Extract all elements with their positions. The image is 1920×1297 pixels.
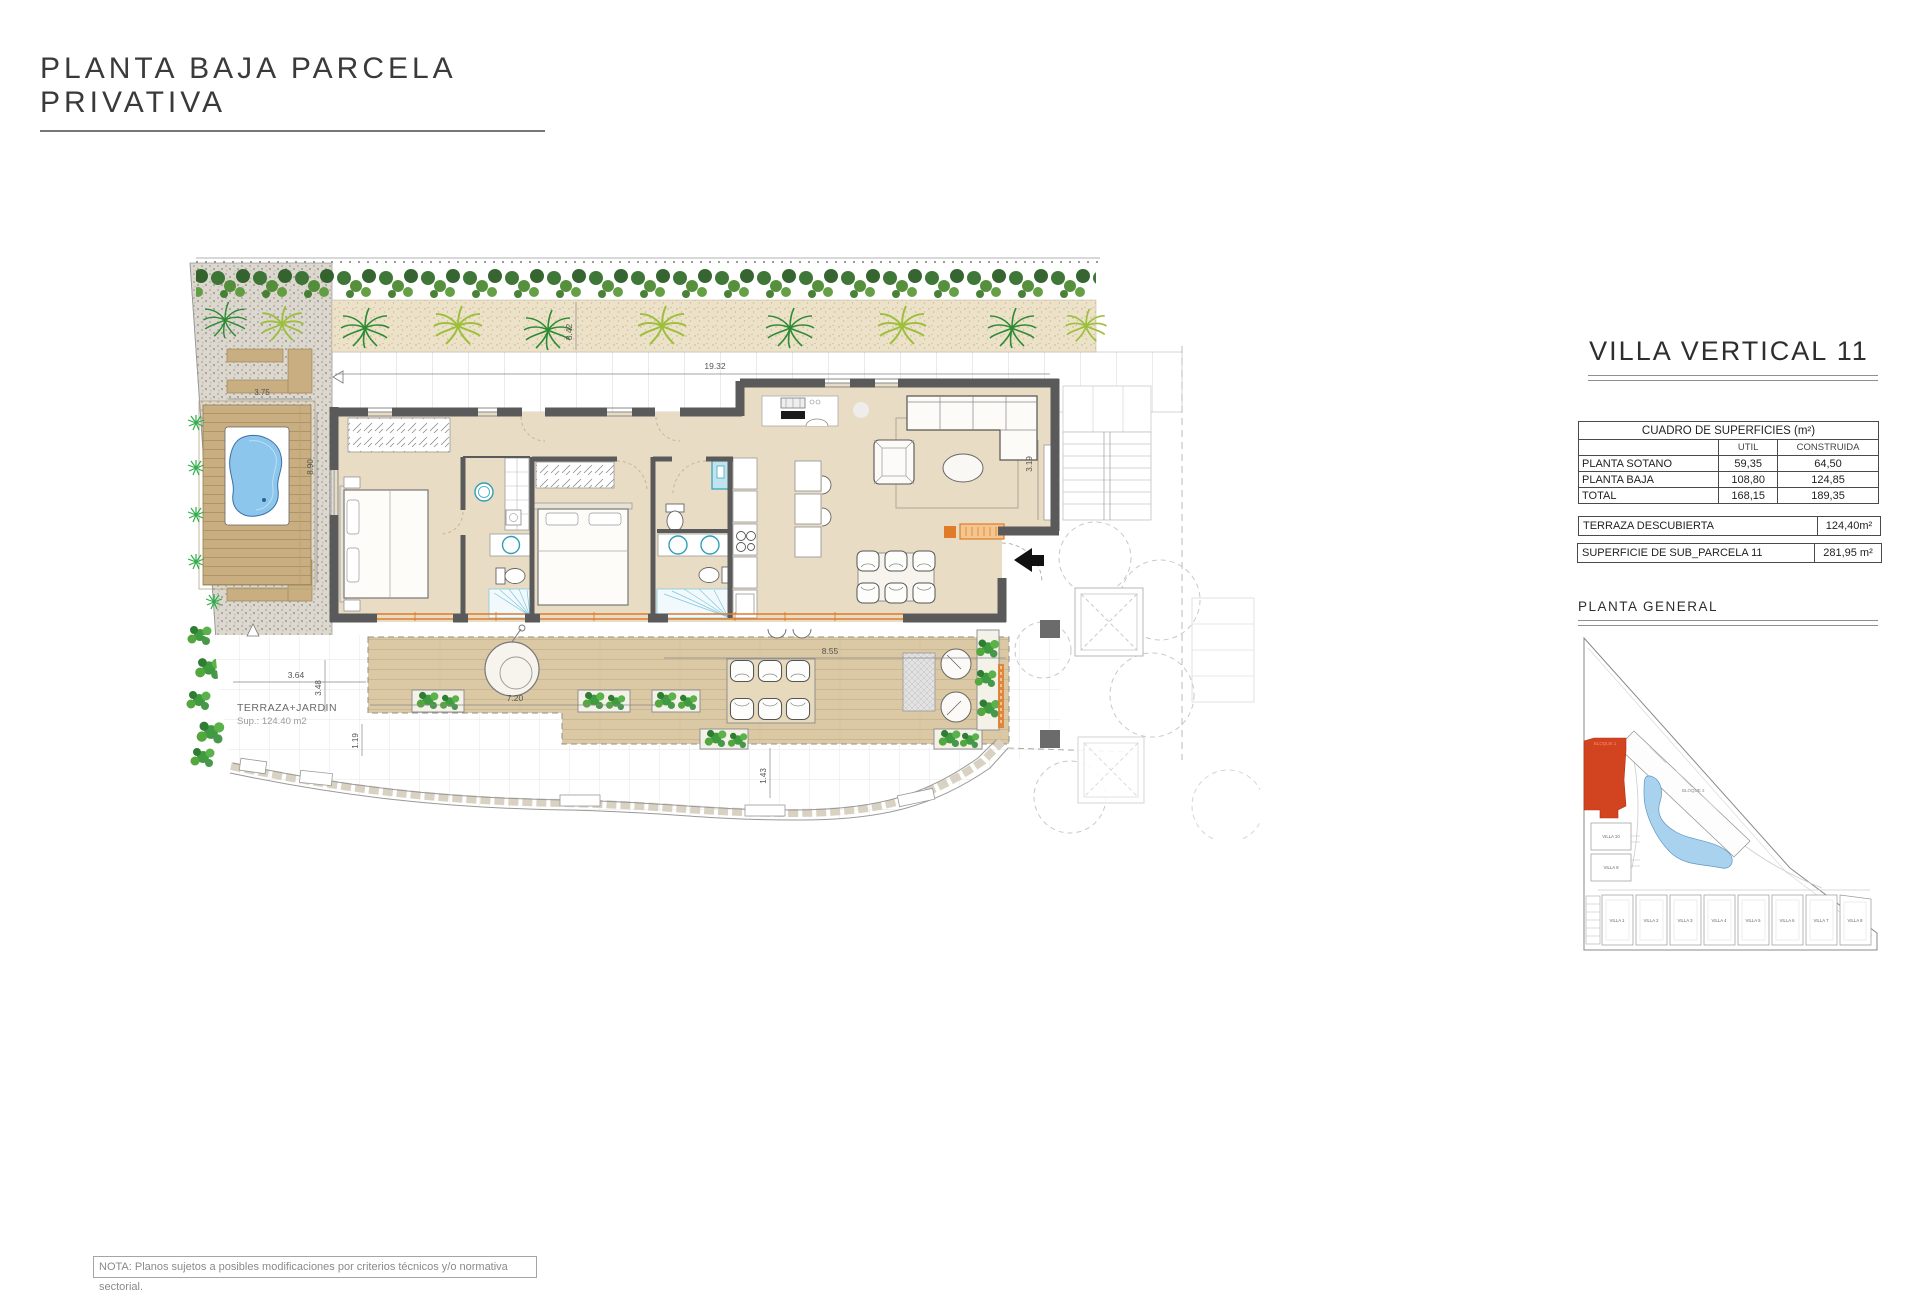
cooktop [781,411,805,419]
col-construida: CONSTRUIDA [1778,440,1879,456]
terraza-descubierta-bar: TERRAZA DESCUBIERTA 124,40m² [1578,516,1881,536]
coffee-table [943,454,983,482]
svg-text:VILLA 6: VILLA 6 [1779,918,1795,923]
map-highlight-block [1584,738,1626,818]
map-bloque2-label: BLOQUE 2 [1682,788,1705,793]
ceiling-light [853,402,869,418]
subparcela-value: 281,95 m² [1814,544,1881,562]
floor-plan: 19.32 3.42 3.75 8.90 3.64 3.48 1.19 7.20… [150,240,1260,840]
svg-text:VILLA 10: VILLA 10 [1602,834,1620,839]
skylight-square-1 [1075,588,1143,656]
planta-general-rule [1578,620,1878,626]
map-bloque1-label: BLOQUE 1 [1594,741,1617,746]
outdoor-dining [727,659,815,723]
dim-terr-h1: 3.48 [314,680,323,696]
surfaces-table: CUADRO DE SUPERFICIES (m²) UTIL CONSTRUI… [1578,421,1879,504]
svg-text:VILLA 9: VILLA 9 [1603,865,1619,870]
dim-terr-h2: 1.19 [351,733,360,749]
map-ramp [1586,896,1600,944]
skylight-square-2 [1078,737,1144,803]
table-row: TOTAL 168,15 189,35 [1579,488,1879,504]
note-box: NOTA: Planos sujetos a posibles modifica… [93,1256,537,1278]
dim-terr-w3: 8.55 [822,646,839,656]
svg-text:VILLA 4: VILLA 4 [1711,918,1727,923]
svg-text:VILLA 5: VILLA 5 [1745,918,1761,923]
villa-title: VILLA VERTICAL 11 [1580,336,1878,367]
terrace-label: TERRAZA+JARDIN [237,702,337,714]
terraza-value: 124,40m² [1817,517,1880,535]
col-util: UTIL [1719,440,1778,456]
planta-general-title: PLANTA GENERAL [1578,599,1718,614]
dim-bed-side: 3.42 [564,323,574,340]
kitchen-counter-top [762,396,838,426]
svg-text:VILLA 7: VILLA 7 [1813,918,1829,923]
site-map: BLOQUE 1 BLOQUE 2 VILLA 10 VILLA 9 VILLA… [1580,628,1880,955]
bedroom2 [534,503,632,605]
map-villa9: VILLA 9 [1591,854,1631,881]
page-title: PLANTA BAJA PARCELA PRIVATIVA [40,52,545,132]
table-row: PLANTA BAJA 108,80 124,85 [1579,472,1879,488]
dim-terr-w1: 3.64 [288,670,305,680]
svg-text:VILLA 2: VILLA 2 [1643,918,1659,923]
toilet-2b [699,568,719,583]
toilet-1 [496,568,505,584]
terrace-area-label: Sup.: 124.40 m2 [237,716,307,727]
dim-terr-h3: 1.43 [759,768,768,784]
toilet-2a [667,511,683,531]
armchair [874,440,914,484]
svg-text:VILLA 1: VILLA 1 [1609,918,1625,923]
svg-text:VILLA 8: VILLA 8 [1847,918,1863,923]
dim-deck-w: 3.75 [254,388,270,397]
villa-title-rule [1588,375,1878,381]
dim-walkway: 19.32 [704,361,726,371]
dim-terr-w2: 7.20 [507,693,524,703]
outdoor-mat [903,653,935,711]
bedroom1 [340,477,428,611]
terraza-label: TERRAZA DESCUBIERTA [1579,517,1817,535]
hedge-row [196,264,1096,302]
svg-text:VILLA 3: VILLA 3 [1677,918,1693,923]
subparcela-label: SUPERFICIE DE SUB_PARCELA 11 [1578,544,1814,562]
tv-sideboard [960,524,1004,539]
surfaces-table-title: CUADRO DE SUPERFICIES (m²) [1579,422,1879,440]
dim-deck-h: 8.90 [306,459,315,475]
map-villa10: VILLA 10 [1591,823,1631,850]
exterior-stairs [1063,432,1151,520]
table-row: PLANTA SOTANO 59,35 64,50 [1579,456,1879,472]
subparcela-bar: SUPERFICIE DE SUB_PARCELA 11 281,95 m² [1577,543,1882,563]
pool-deck [199,401,315,589]
dim-living-h: 3.19 [1025,456,1034,472]
